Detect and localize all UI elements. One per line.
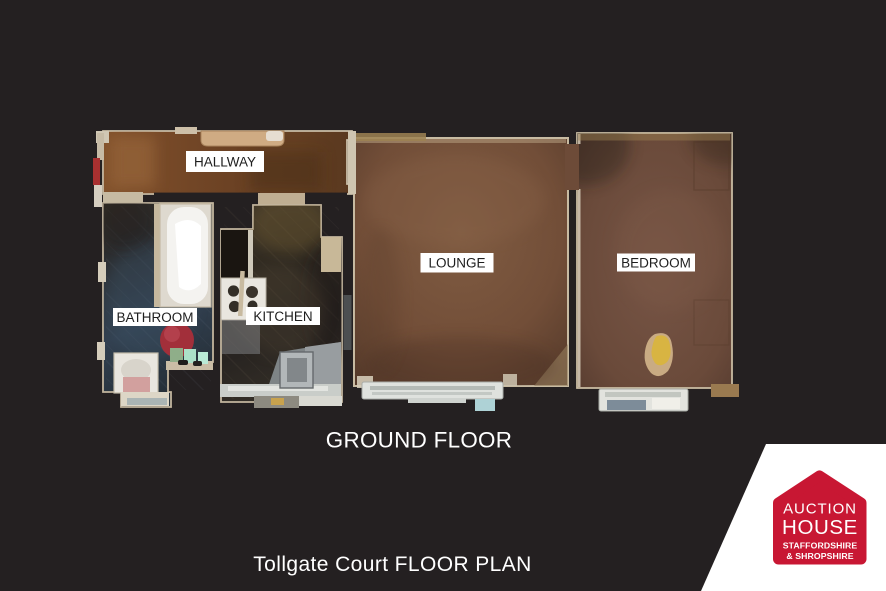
svg-text:GROUND FLOOR: GROUND FLOOR bbox=[326, 428, 512, 453]
svg-text:BEDROOM: BEDROOM bbox=[621, 255, 691, 270]
svg-text:LOUNGE: LOUNGE bbox=[428, 256, 485, 271]
svg-text:HOUSE: HOUSE bbox=[782, 516, 858, 539]
svg-text:AUCTION: AUCTION bbox=[783, 501, 857, 518]
svg-text:& SHROPSHIRE: & SHROPSHIRE bbox=[786, 551, 853, 561]
svg-text:HALLWAY: HALLWAY bbox=[194, 155, 256, 170]
svg-text:Tollgate Court FLOOR PLAN: Tollgate Court FLOOR PLAN bbox=[253, 553, 531, 576]
svg-text:BATHROOM: BATHROOM bbox=[117, 310, 194, 325]
svg-text:KITCHEN: KITCHEN bbox=[253, 309, 312, 324]
svg-text:STAFFORDSHIRE: STAFFORDSHIRE bbox=[783, 541, 858, 551]
